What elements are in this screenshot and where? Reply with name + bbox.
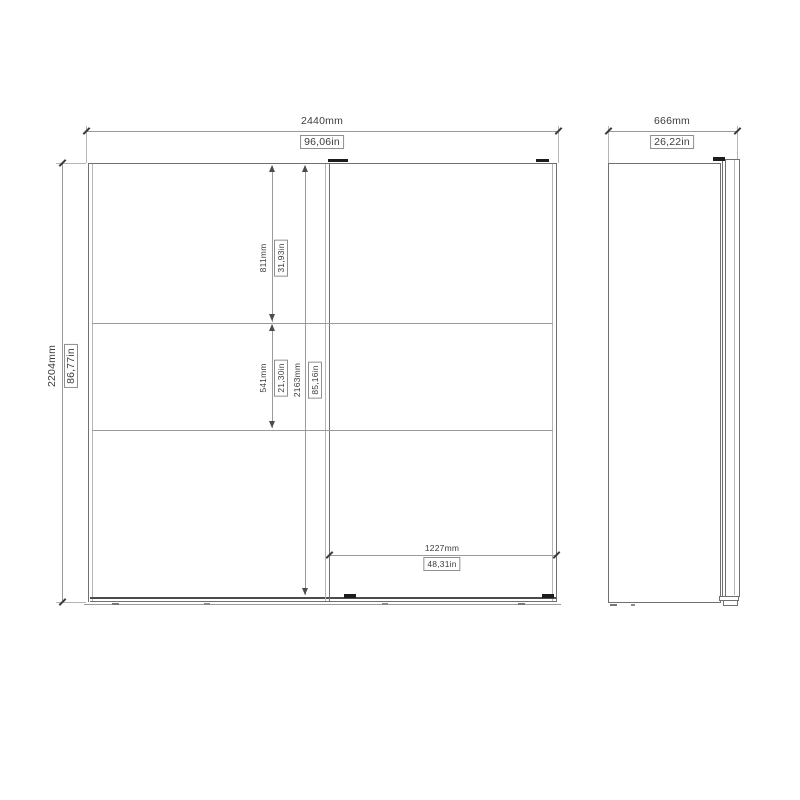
side-body-outline [608,163,721,603]
front-right-edge-inner [552,164,553,601]
front-base-rail-top [90,597,556,599]
dim-side-depth-mm: 666mm [654,115,690,127]
shelf-line-upper [92,323,553,324]
dim-top-section-line [272,166,273,322]
dim-front-width-in: 96,06in [300,135,344,149]
dim-arrow-up [269,324,275,331]
front-left-edge-outer [88,163,89,602]
door-divider-outer [329,163,330,602]
dim-front-height-in: 86,77in [64,344,78,388]
dim-front-width-line [86,131,558,132]
front-top-edge [88,163,557,164]
dim-arrow-up [302,165,308,172]
dim-interior-height-in: 85,16in [308,361,322,398]
shelf-line-lower [92,430,553,431]
door-divider-inner [325,164,326,601]
side-door-inner-line-2 [734,160,735,595]
front-foot-mark-2 [204,603,210,605]
dim-interior-height-mm: 2163mm [292,363,302,397]
front-base-rail-bottom [90,601,556,602]
dim-arrow-down [269,314,275,321]
dim-arrow-down [269,421,275,428]
dim-middle-section-in: 21,30in [274,359,288,396]
dim-door-width-line [329,555,556,556]
dim-top-section-in: 31,93in [274,239,288,276]
side-top-roller-icon [713,157,725,161]
drawing-canvas: 2440mm 96,06in 2204mm 86,77in 811mm 31,9… [0,0,800,800]
side-door-inner-line-1 [725,159,726,596]
dim-door-width-mm: 1227mm [425,543,459,553]
side-foot-mark-2 [631,604,635,606]
dim-middle-section-line [272,325,273,428]
dim-side-depth-in: 26,22in [650,135,694,149]
dim-interior-height-line [305,166,306,595]
bottom-roller-left-icon [344,594,356,598]
front-right-edge-outer [556,163,557,602]
dim-arrow-up [269,165,275,172]
front-left-edge-inner [92,164,93,601]
dim-front-height-line [62,163,63,602]
front-plinth-line [84,604,561,605]
dim-door-width-in: 48,31in [423,557,460,571]
dim-arrow-down [302,588,308,595]
dim-side-depth-line [608,131,737,132]
front-foot-mark-1 [112,603,119,605]
dim-front-height-mm: 2204mm [46,345,58,387]
front-foot-mark-3 [382,603,388,605]
side-door-foot-lower [723,600,738,606]
side-foot-mark-1 [610,604,617,606]
dim-front-width-mm: 2440mm [301,115,343,127]
dim-top-section-mm: 811mm [258,244,268,273]
top-roller-right-icon [536,159,549,162]
front-foot-mark-4 [518,603,525,605]
top-roller-left-icon [328,159,348,162]
bottom-roller-right-icon [542,594,554,598]
dim-middle-section-mm: 541mm [258,363,268,392]
